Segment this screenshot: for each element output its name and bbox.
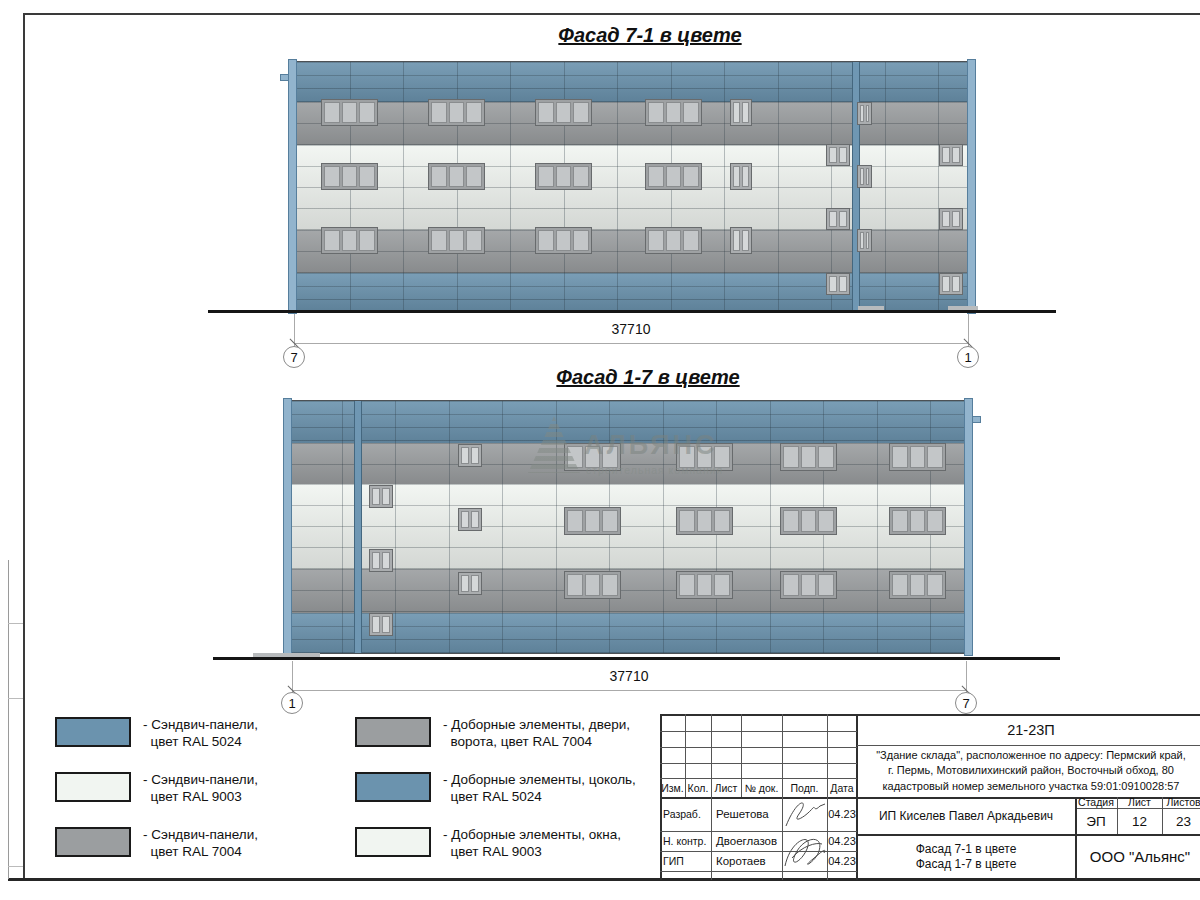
window-pane <box>324 230 340 251</box>
dimension-line <box>292 690 966 691</box>
signer-name: Решетова <box>716 797 780 831</box>
window-pane <box>839 276 847 292</box>
window <box>826 208 850 230</box>
signer-role: Н. контр. <box>663 831 711 851</box>
window <box>889 571 946 599</box>
stage-value: ЭП <box>1075 808 1117 834</box>
window-pane <box>342 102 358 123</box>
window-pane <box>556 230 572 251</box>
window-pane <box>466 102 482 123</box>
window-pane <box>471 575 479 592</box>
signer-role: Разраб. <box>663 797 711 831</box>
window-pane <box>556 166 572 187</box>
window-pane <box>829 211 837 227</box>
signer-date: 04.23 <box>827 831 857 851</box>
legend-label: - Доборные элементы, цоколь, цвет RAL 50… <box>443 771 636 805</box>
window <box>780 507 837 535</box>
window-pane <box>585 510 601 532</box>
window-pane <box>648 102 664 123</box>
window <box>428 163 485 190</box>
frame-margin-line <box>8 560 9 879</box>
window <box>564 571 621 599</box>
window-pane <box>466 230 482 251</box>
window-pane <box>461 447 469 464</box>
axis-marker: 1 <box>281 692 303 714</box>
sheet-label: Лист <box>1117 796 1162 808</box>
window-pane <box>683 230 699 251</box>
window <box>857 229 872 252</box>
window-pane <box>742 230 749 251</box>
window-pane <box>449 166 465 187</box>
window-pane <box>942 147 950 163</box>
window-pane <box>714 574 730 596</box>
company-name: ООО "Альянс" <box>1075 834 1200 879</box>
window <box>676 507 733 535</box>
window-pane <box>567 574 583 596</box>
signer-date: 04.23 <box>827 797 857 831</box>
rev-header: Изм. <box>660 778 685 797</box>
facade-pilaster <box>964 398 973 656</box>
window <box>535 99 592 126</box>
window-pane <box>359 166 375 187</box>
window-pane <box>818 446 834 468</box>
sheets-label: Листов <box>1162 796 1200 808</box>
window <box>857 102 872 125</box>
window-pane <box>602 510 618 532</box>
window-pane <box>860 232 864 249</box>
window-pane <box>839 147 847 163</box>
window-pane <box>860 105 864 122</box>
drawing-sheet: Фасад 7-1 в цвете3771071Фасад 1-7 в цвет… <box>0 0 1200 900</box>
signature-korotaev <box>785 839 825 866</box>
window <box>645 227 702 254</box>
tb-line <box>782 714 783 880</box>
window-pane <box>648 230 664 251</box>
window-pane <box>952 147 960 163</box>
window-pane <box>538 102 554 123</box>
window-pane <box>927 574 943 596</box>
window-pane <box>927 510 943 532</box>
window-pane <box>942 211 950 227</box>
window-pane <box>359 102 375 123</box>
window <box>939 273 963 295</box>
window-pane <box>573 166 589 187</box>
watermark-title: АЛЬЯНС <box>584 430 718 461</box>
facade-elevation <box>295 61 969 312</box>
window-pane <box>382 488 390 505</box>
watermark-tagline: строительная компания <box>586 464 723 476</box>
window <box>535 163 592 190</box>
sheet-number: 12 <box>1117 808 1162 834</box>
legend-label: - Сэндвич-панели, цвет RAL 9003 <box>143 771 258 805</box>
drawing-title: Фасад 7-1 в цвете Фасад 1-7 в цвете <box>857 834 1075 879</box>
window-pane <box>839 211 847 227</box>
legend-swatch <box>55 717 131 747</box>
window-pane <box>829 276 837 292</box>
window <box>939 208 963 230</box>
window-pane <box>538 230 554 251</box>
window-pane <box>538 166 554 187</box>
sheets-total: 23 <box>1162 808 1200 834</box>
window <box>730 163 752 190</box>
window-pane <box>573 230 589 251</box>
legend-swatch <box>355 717 431 747</box>
project-description: "Здание склада", расположенное по адресу… <box>857 745 1200 797</box>
window-pane <box>372 488 380 505</box>
frame-margin-div2 <box>8 698 23 699</box>
rev-header: Дата <box>827 778 857 797</box>
frame-margin-div1 <box>8 623 23 624</box>
signature-reshetova <box>786 803 825 826</box>
window-pane <box>449 102 465 123</box>
window-pane <box>648 166 664 187</box>
window-pane <box>556 102 572 123</box>
window-pane <box>466 166 482 187</box>
window-pane <box>783 574 799 596</box>
window <box>321 99 378 126</box>
window-pane <box>860 168 864 185</box>
window <box>730 99 752 126</box>
axis-marker: 7 <box>955 692 977 714</box>
ground-line <box>208 310 1056 313</box>
window-pane <box>372 552 380 569</box>
window-pane <box>679 574 695 596</box>
pilaster-cap <box>280 74 289 81</box>
signer-date: 04.23 <box>827 851 857 871</box>
window-pane <box>892 574 908 596</box>
window <box>321 163 378 190</box>
window <box>369 549 393 572</box>
window <box>564 507 621 535</box>
window <box>780 443 837 471</box>
pilaster-cap <box>972 416 981 423</box>
window <box>645 99 702 126</box>
facade-title: Фасад 1-7 в цвете <box>556 366 739 389</box>
client-name: ИП Киселев Павел Аркадьевич <box>857 797 1075 834</box>
axis-marker: 1 <box>957 346 979 368</box>
window-pane <box>892 446 908 468</box>
dimension-value: 37710 <box>612 321 651 337</box>
legend-label: - Доборные элементы, двери, ворота, цвет… <box>443 716 630 750</box>
window <box>730 227 752 254</box>
window-pane <box>431 102 447 123</box>
window <box>321 227 378 254</box>
window-pane <box>952 211 960 227</box>
window-pane <box>342 230 358 251</box>
window-pane <box>324 166 340 187</box>
window-pane <box>683 102 699 123</box>
window-pane <box>801 574 817 596</box>
window-pane <box>733 230 740 251</box>
facade-pilaster <box>283 398 292 656</box>
ground-line <box>213 657 1060 660</box>
window-pane <box>359 230 375 251</box>
window <box>780 571 837 599</box>
facade-pilaster <box>288 59 297 314</box>
legend-swatch <box>55 772 131 802</box>
window-pane <box>666 102 682 123</box>
window <box>428 99 485 126</box>
window-pane <box>742 166 749 187</box>
window-pane <box>892 510 908 532</box>
window-pane <box>714 510 730 532</box>
legend-swatch <box>55 827 131 857</box>
window-pane <box>567 510 583 532</box>
window-pane <box>697 574 713 596</box>
window-pane <box>666 230 682 251</box>
legend-label: - Сэндвич-панели, цвет RAL 5024 <box>143 716 258 750</box>
signer-name: Двоеглазов <box>716 831 780 851</box>
window-pane <box>342 166 358 187</box>
window-pane <box>942 276 950 292</box>
window <box>428 227 485 254</box>
window-pane <box>927 446 943 468</box>
window <box>939 144 963 166</box>
window <box>826 144 850 166</box>
window-pane <box>382 552 390 569</box>
window-pane <box>449 230 465 251</box>
window-pane <box>471 447 479 464</box>
window-pane <box>866 105 870 122</box>
axis-marker: 7 <box>283 346 305 368</box>
window-pane <box>910 446 926 468</box>
frame-top-border <box>23 13 1200 15</box>
window-pane <box>697 510 713 532</box>
window-pane <box>733 166 740 187</box>
window <box>857 165 872 188</box>
window-pane <box>471 511 479 528</box>
window-pane <box>866 168 870 185</box>
window-pane <box>866 232 870 249</box>
window-pane <box>910 510 926 532</box>
window-pane <box>461 575 469 592</box>
window-pane <box>324 102 340 123</box>
window-pane <box>372 616 380 633</box>
window-pane <box>461 511 469 528</box>
window-pane <box>666 166 682 187</box>
window <box>458 444 482 467</box>
window <box>369 613 393 636</box>
legend-label: - Сэндвич-панели, цвет RAL 7004 <box>143 826 258 860</box>
window-pane <box>585 574 601 596</box>
frame-left-border <box>23 13 25 880</box>
rev-header: Подп. <box>782 778 827 797</box>
window-pane <box>952 276 960 292</box>
tb-line <box>711 714 712 880</box>
doc-number: 21-23П <box>857 715 1200 745</box>
rev-header: Лист <box>711 778 741 797</box>
window-pane <box>382 616 390 633</box>
facade-title: Фасад 7-1 в цвете <box>558 24 741 47</box>
window-pane <box>602 574 618 596</box>
rev-header: Кол. <box>685 778 711 797</box>
window <box>458 508 482 531</box>
facade-panel-band <box>288 569 968 613</box>
window-pane <box>801 510 817 532</box>
window-pane <box>683 166 699 187</box>
window <box>535 227 592 254</box>
window-pane <box>431 230 447 251</box>
window <box>369 485 393 508</box>
window-pane <box>679 510 695 532</box>
window <box>889 507 946 535</box>
signer-name: Коротаев <box>716 851 780 871</box>
facade-pilaster <box>967 59 976 314</box>
window-pane <box>573 102 589 123</box>
rev-header: № док. <box>741 778 782 797</box>
window-pane <box>431 166 447 187</box>
dimension-value: 37710 <box>610 668 649 684</box>
window <box>889 443 946 471</box>
window <box>458 572 482 595</box>
window <box>676 571 733 599</box>
window-pane <box>829 147 837 163</box>
window-pane <box>733 102 740 123</box>
facade-panel-band <box>296 62 968 102</box>
legend-label: - Доборные элементы, окна, цвет RAL 9003 <box>443 826 621 860</box>
window-pane <box>783 510 799 532</box>
window-pane <box>742 102 749 123</box>
window-pane <box>801 446 817 468</box>
window-pane <box>783 446 799 468</box>
window-pane <box>818 510 834 532</box>
frame-margin-div3 <box>8 866 23 867</box>
facade-column <box>354 401 362 653</box>
window-pane <box>910 574 926 596</box>
legend-swatch <box>355 772 431 802</box>
window <box>645 163 702 190</box>
legend-swatch <box>355 827 431 857</box>
window-pane <box>818 574 834 596</box>
dimension-line <box>294 343 968 344</box>
window <box>826 273 850 295</box>
signer-role: ГИП <box>663 851 711 871</box>
stage-label: Стадия <box>1075 796 1117 808</box>
